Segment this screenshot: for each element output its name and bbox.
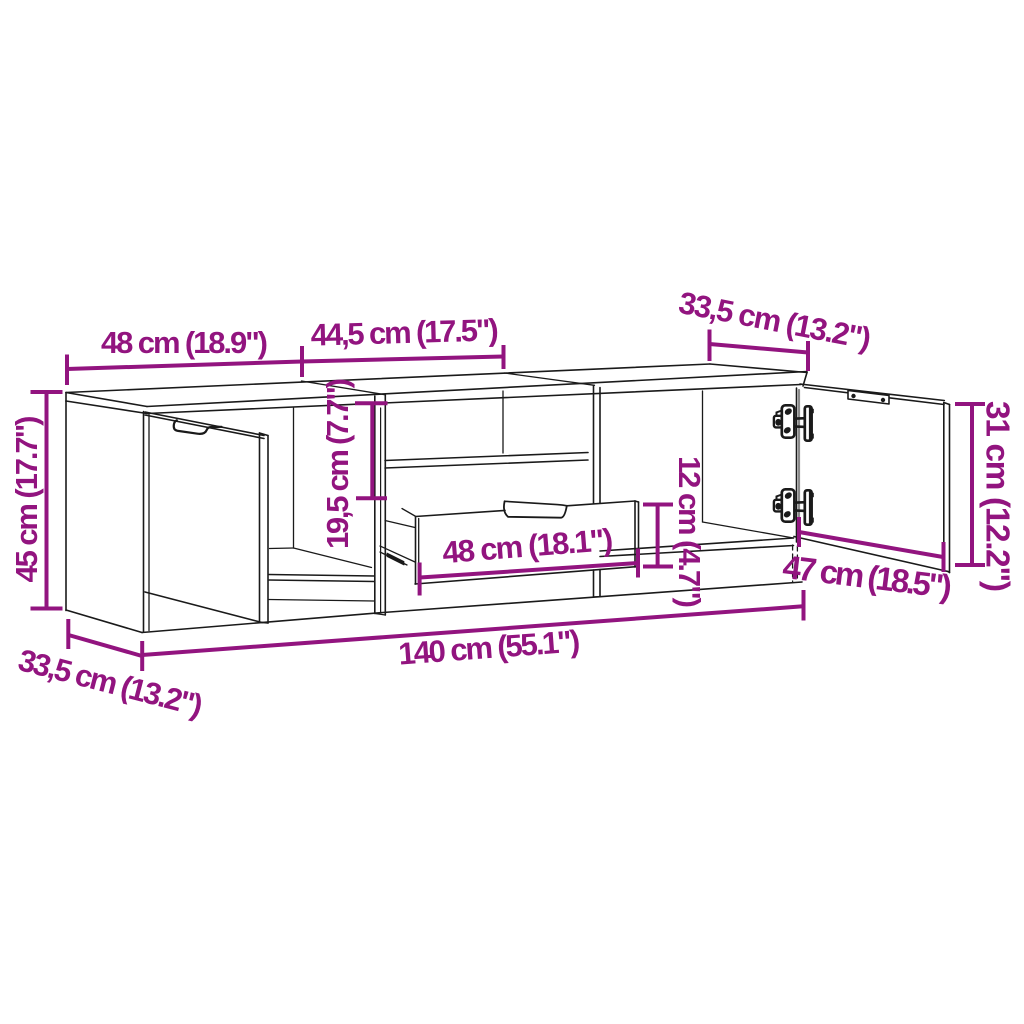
svg-text:45 cm (17.7"): 45 cm (17.7") bbox=[9, 416, 44, 583]
svg-text:12 cm (4.7"): 12 cm (4.7") bbox=[672, 456, 707, 608]
svg-text:44,5 cm (17.5"): 44,5 cm (17.5") bbox=[310, 312, 499, 352]
svg-text:48 cm (18.9"): 48 cm (18.9") bbox=[101, 325, 268, 360]
svg-text:31 cm (12.2"): 31 cm (12.2") bbox=[979, 401, 1016, 592]
svg-text:19,5 cm (7.7"): 19,5 cm (7.7") bbox=[320, 378, 355, 549]
